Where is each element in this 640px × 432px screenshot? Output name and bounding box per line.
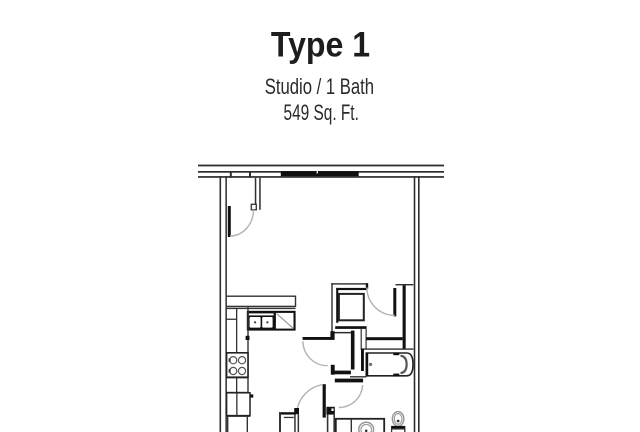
svg-text:549 Sq. Ft.: 549 Sq. Ft.: [284, 100, 359, 125]
svg-text:Studio / 1 Bath: Studio / 1 Bath: [265, 74, 374, 99]
svg-text:Type 1: Type 1: [271, 24, 370, 64]
